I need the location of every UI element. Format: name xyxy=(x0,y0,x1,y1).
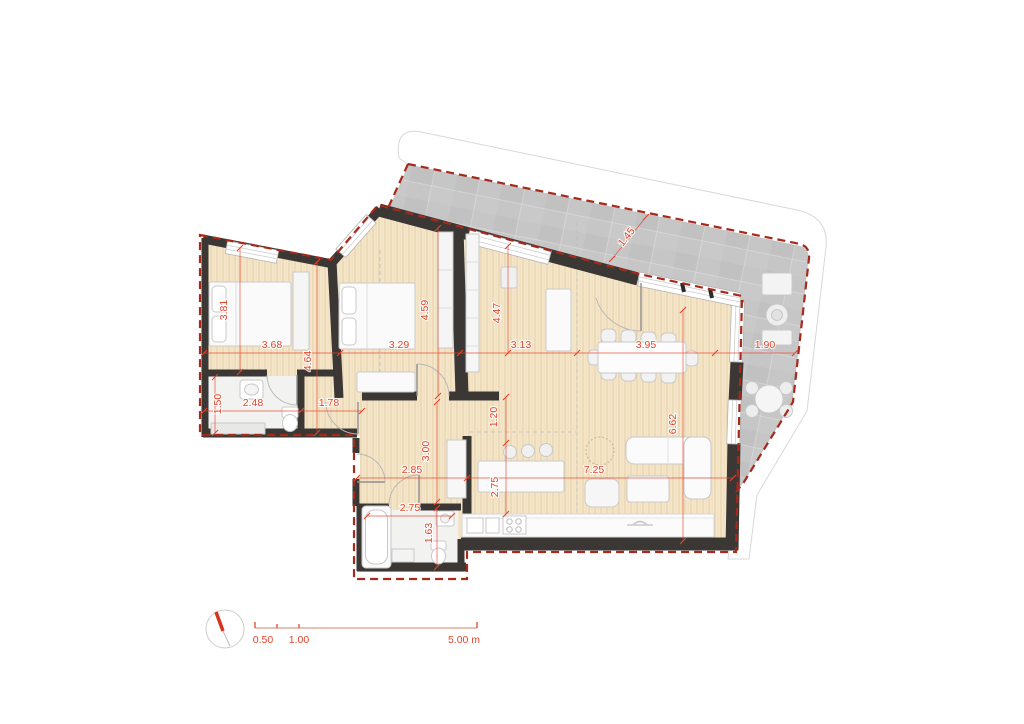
shelf-living-divider xyxy=(466,234,479,372)
wardrobe-bedroom2 xyxy=(438,232,453,348)
counter-bath1 xyxy=(211,423,265,434)
stove xyxy=(503,516,526,534)
floor-plan: 3.813.684.643.294.594.473.133.951.451.90… xyxy=(0,0,1024,724)
bar-stool xyxy=(540,444,553,457)
dimension-label: 2.48 xyxy=(243,397,264,409)
dimension-label: 1.78 xyxy=(319,397,340,409)
dimension-label: 3.00 xyxy=(420,441,432,462)
bar-stool xyxy=(504,446,517,459)
north-arrow-icon xyxy=(206,610,244,648)
dimension-label: 4.59 xyxy=(419,300,431,321)
dimension-label: 3.13 xyxy=(511,339,532,351)
dimension-label: 3.95 xyxy=(636,339,657,351)
dimension-label: 1.63 xyxy=(423,523,435,544)
kitchen-counter xyxy=(462,514,714,537)
sideboard-living xyxy=(546,289,571,351)
coffee-table xyxy=(627,476,669,502)
armchair xyxy=(585,479,619,507)
scale-bar-labels: 0.501.005.00 m xyxy=(253,634,481,646)
scale-bar-label: 1.00 xyxy=(289,634,310,646)
floor-plan-canvas: 3.813.684.643.294.594.473.133.951.451.90… xyxy=(0,0,1024,724)
dimension-label: 3.68 xyxy=(262,339,283,351)
bathtub-bath2 xyxy=(362,506,391,568)
scale-bar-label: 0.50 xyxy=(253,634,274,646)
dimension-label: 7.25 xyxy=(584,464,605,476)
dimension-label: 3.29 xyxy=(389,339,410,351)
dimension-label: 1.20 xyxy=(488,407,500,428)
hall-cabinet xyxy=(447,440,466,498)
dimension-label: 3.81 xyxy=(218,300,230,321)
sink-bath2 xyxy=(436,511,454,526)
scale-bar: 0.501.005.00 m xyxy=(253,622,481,646)
wardrobe-bedroom1 xyxy=(293,272,309,350)
dimension-label: 4.64 xyxy=(302,351,314,372)
dimension-label: 2.75 xyxy=(489,477,501,498)
dimension-label: 1.90 xyxy=(755,339,776,351)
dimension-label: 2.75 xyxy=(400,502,421,514)
scale-bar-label: 5.00 m xyxy=(448,634,480,646)
cabinet-bath2 xyxy=(392,549,414,562)
dimension-label: 1.50 xyxy=(212,394,224,415)
toilet-bath2 xyxy=(431,541,446,564)
dimension-label: 6.62 xyxy=(667,414,679,435)
bar-stool xyxy=(522,445,535,458)
dimension-label: 2.85 xyxy=(402,464,423,476)
dimension-label: 4.47 xyxy=(491,303,503,324)
tv-unit xyxy=(501,267,517,288)
bench-bedroom2 xyxy=(357,372,415,392)
